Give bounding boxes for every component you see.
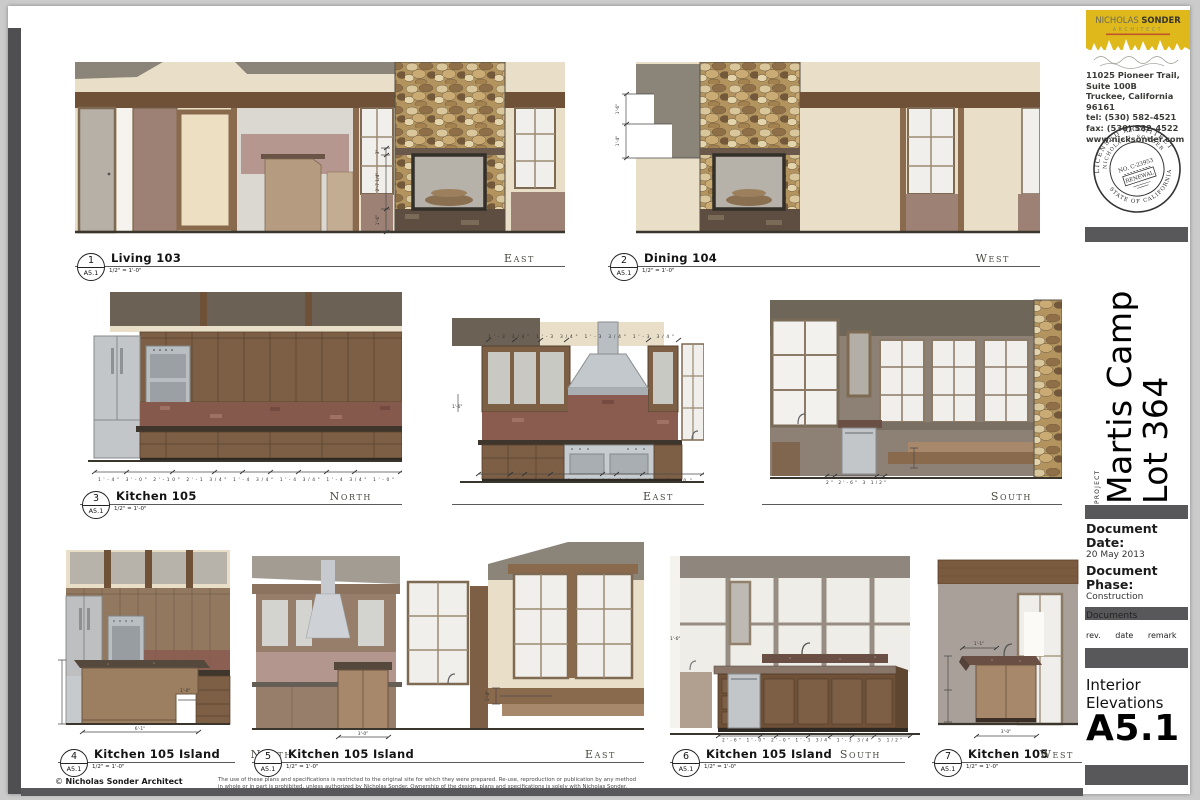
copyright-symbol: © (55, 777, 63, 786)
project-name-line2: Lot 364 (1138, 246, 1174, 504)
drawing-number-bubble: 5 A5.1 (254, 749, 282, 777)
cabinet (772, 442, 800, 476)
svg-text:1'-6": 1'-6" (375, 215, 381, 225)
sheet-number: A5.1 (1086, 708, 1180, 749)
drawing-title: Dining 104 (644, 251, 717, 265)
drawing-dining-104-west: 1'-6" 1'-4" (608, 62, 1040, 244)
drawing-kitchen-105-north: 1'-4" 3'-0" 2'-10" 2'-1 3/4" 1'-4 3/4" 1… (80, 288, 402, 484)
window (682, 344, 704, 440)
tile-backsplash (140, 402, 402, 426)
fireplace (714, 155, 784, 209)
compass-direction: West (1040, 748, 1074, 761)
drawing-scale: 1/2" = 1'-0" (704, 764, 737, 770)
svg-text:1'-0": 1'-0" (180, 688, 190, 694)
svg-text:3'-0": 3'-0" (358, 731, 368, 737)
sheet-title: Interior Elevations (1086, 676, 1164, 712)
revision-header-row: rev. date remark (1086, 631, 1190, 640)
drawing-number-bubble: 2 A5.1 (610, 253, 638, 281)
svg-text:2'-7 1/4": 2'-7 1/4" (375, 173, 381, 192)
drawing-title: Kitchen 105 Island (94, 747, 220, 761)
countertop (136, 426, 402, 432)
logo-name-bold: SONDER (1141, 15, 1181, 25)
label-kitchen-105-island-north: 4 A5.1 Kitchen 105 Island North 1/2" = 1… (58, 744, 235, 778)
fireplace (413, 155, 485, 209)
bench-steps (888, 442, 1034, 464)
drawing-kitchen-105-island-south: 2'-6" 1'-0" 2'-0" 1'-3 3/4" 1'-3 3/4" 5 … (670, 542, 920, 742)
window-header (508, 564, 638, 574)
label-underline (75, 266, 565, 267)
project-name-block: PROJECT Martis Camp Lot 364 (1094, 246, 1190, 504)
document-date-value: 20 May 2013 (1086, 550, 1190, 561)
window-sink (408, 582, 468, 684)
logo-tagline-line (1106, 34, 1170, 36)
svg-text:6'-1": 6'-1" (135, 726, 145, 732)
wood-cabinet-column (470, 586, 488, 729)
drawing-kitchen-105-south: 2" 2'-6" 3 1/2" (762, 292, 1062, 484)
label-kitchen-105-east: East (452, 486, 704, 520)
soffit (110, 292, 402, 326)
compass-direction: East (643, 490, 674, 503)
drawing-number-bubble: 3 A5.1 (82, 491, 110, 519)
base-cabinets (140, 432, 402, 461)
drawing-title: Kitchen 105 (116, 489, 197, 503)
sheet-left-edge-strip (8, 28, 21, 794)
label-kitchen-105: 3 A5.1 Kitchen 105 North 1/2" = 1'-0" (80, 486, 402, 520)
dishwasher (842, 428, 876, 474)
tile-fleck (512, 418, 524, 422)
window (904, 108, 958, 232)
side-dimension: 1'-6" (452, 394, 462, 412)
logo-subtitle: ARCHITECT (1113, 27, 1163, 33)
address-line: 11025 Pioneer Trail, Suite 100B (1086, 70, 1192, 91)
wall-sliver (117, 108, 132, 232)
label-dining-104: 2 A5.1 Dining 104 West 1/2" = 1'-0" (608, 248, 1040, 282)
rev-header: rev. (1086, 631, 1101, 640)
kitchen-view-beyond (235, 108, 355, 232)
architect-stamp: LICENSED ARCHITECT NICHOLAS J. SONDER ST… (1090, 122, 1184, 216)
window-left-of-chimney (361, 108, 393, 232)
drawing-kitchen-105-island-east: 3'-0" 1'-4" (252, 538, 644, 742)
compass-direction: South (840, 748, 881, 761)
project-name-line1: Martis Camp (1102, 246, 1138, 504)
dishwasher (728, 674, 760, 728)
wall-strip (110, 326, 402, 332)
countertop (478, 440, 682, 445)
drawing-title: Kitchen 105 (968, 747, 1049, 761)
drawing-title: Kitchen 105 Island (706, 747, 832, 761)
document-info: Document Date: 20 May 2013 Document Phas… (1086, 522, 1190, 640)
framed-panel (179, 112, 231, 228)
svg-text:2'-6" 1'-0" 2'-0" 1'-3 3/4": 2'-6" 1'-0" 2'-0" 1'-3 3/4" 1'-3 3/4" 5 … (722, 738, 902, 743)
living-door (79, 108, 115, 232)
architectural-sheet-canvas: 3" 2'-7 1/4" 1'-6" (0, 0, 1200, 800)
drawing-number-bubble: 7 A5.1 (934, 749, 962, 777)
label-kitchen-105-island-south: 6 A5.1 Kitchen 105 Island South 1/2" = 1… (670, 744, 905, 778)
svg-text:1'-6": 1'-6" (615, 104, 621, 114)
label-kitchen-105-island-east: 5 A5.1 Kitchen 105 Island East 1/2" = 1'… (252, 744, 644, 778)
titleblock-divider-bar (1085, 648, 1188, 668)
label-underline (608, 266, 1040, 267)
label-living-103: 1 A5.1 Living 103 East 1/2" = 1'-0" (75, 248, 565, 282)
drawing-kitchen-105-east: 1'-3 3/4" 1'-3 3/4" 1'-3 3/4" 1'-3 3/4" … (452, 288, 704, 484)
wood-post (353, 108, 359, 232)
document-phase-value-line1: Construction (1086, 592, 1190, 603)
sloped-ceiling-steps (636, 64, 700, 158)
titleblock-divider-bar (1085, 227, 1188, 242)
tile-fleck (602, 400, 614, 404)
wood-post (900, 108, 906, 232)
drawing-title: Kitchen 105 Island (288, 747, 414, 761)
drawing-scale: 1/2" = 1'-0" (966, 764, 999, 770)
drawing-scale: 1/2" = 1'-0" (92, 764, 125, 770)
dimension-string: 1'-4" 3'-0" 2'-10" 2'-1 3/4" 1'-4 3/4" 1… (92, 470, 402, 483)
sheet-title-line1: Interior (1086, 676, 1164, 694)
svg-text:1'-4": 1'-4" (615, 136, 621, 146)
compass-direction: South (991, 490, 1032, 503)
clerestory (66, 550, 230, 588)
firm-logo: NICHOLAS SONDER ARCHITECT (1086, 10, 1190, 72)
tile-fleck (657, 420, 669, 424)
wood-post (200, 292, 207, 326)
drawing-title: Living 103 (111, 251, 181, 265)
drawing-number-bubble: 6 A5.1 (672, 749, 700, 777)
drawing-kitchen-105-west: 1'-1" 3'-0" (932, 540, 1084, 745)
titleblock-divider-bar (1085, 765, 1188, 785)
upper-glass-cabinet-right (648, 346, 678, 412)
drawing-number-bubble: 1 A5.1 (77, 253, 105, 281)
bench-steps (488, 688, 644, 716)
titleblock-divider-bar (1085, 505, 1188, 519)
svg-text:2" 2'-6" 3 1/2": 2" 2'-6" 3 1/2" (826, 480, 886, 484)
svg-text:NICHOLAS SONDER: NICHOLAS SONDER (1095, 15, 1181, 25)
compass-direction: East (504, 252, 535, 265)
svg-text:1'-6": 1'-6" (452, 404, 462, 410)
drawing-living-103-east: 3" 2'-7 1/4" 1'-6" (75, 62, 565, 244)
remark-header: remark (1148, 631, 1177, 640)
label-kitchen-105-south: South (762, 486, 1062, 520)
drawing-scale: 1/2" = 1'-0" (642, 268, 675, 274)
svg-text:3'-0": 3'-0" (1001, 729, 1011, 735)
label-underline (252, 762, 644, 763)
svg-text:1'-4" 3'-0" 2'-10" 2'-1 3/4: 1'-4" 3'-0" 2'-10" 2'-1 3/4" 1'-4 3/4" 1… (98, 477, 394, 483)
window-sliver (1018, 108, 1040, 232)
drawing-kitchen-105-island-north: 6'-1" 1'-0" (58, 542, 238, 740)
counter (838, 420, 882, 428)
counter (194, 670, 230, 676)
window-left (772, 320, 838, 426)
date-header: date (1115, 631, 1133, 640)
logo-name-thin: NICHOLAS (1095, 15, 1138, 25)
drawing-scale: 1/2" = 1'-0" (109, 268, 142, 274)
island (334, 662, 392, 729)
drawing-number-bubble: 4 A5.1 (60, 749, 88, 777)
svg-text:1'-6": 1'-6" (670, 636, 680, 642)
document-phase-label: Document Phase: (1086, 564, 1190, 592)
address-line: Truckee, California 96161 (1086, 91, 1192, 112)
window-wall (874, 340, 1034, 430)
wood-post (305, 292, 312, 326)
window-pair (514, 574, 632, 678)
compass-direction: East (585, 748, 616, 761)
document-phase-value-line2: Documents (1086, 611, 1137, 621)
framed-panel (848, 332, 870, 396)
refrigerator (94, 336, 140, 458)
wood-panel (133, 108, 177, 232)
compass-direction: North (330, 490, 372, 503)
label-underline (670, 762, 905, 763)
compass-direction: West (976, 252, 1010, 265)
wood-post (231, 108, 237, 232)
document-date-label: Document Date: (1086, 522, 1190, 550)
copyright-name: Nicholas Sonder Architect (66, 777, 183, 786)
label-underline (452, 504, 704, 505)
label-underline (80, 504, 402, 505)
label-underline (762, 504, 1062, 505)
wood-post (958, 108, 964, 232)
dining-left-wall (636, 158, 700, 232)
base-cabinet (196, 676, 230, 724)
svg-text:1'-1": 1'-1" (974, 641, 984, 647)
copyright-note: © Nicholas Sonder Architect The use of t… (55, 777, 183, 786)
drawing-scale: 1/2" = 1'-0" (286, 764, 319, 770)
svg-text:1'-4": 1'-4" (485, 691, 491, 701)
wood-beam (800, 92, 1040, 108)
drawing-scale: 1/2" = 1'-0" (114, 506, 147, 512)
label-kitchen-105-west: 7 A5.1 Kitchen 105 West 1/2" = 1'-0" (932, 744, 1082, 778)
stone-column (1034, 300, 1062, 478)
soffit (452, 318, 540, 346)
document-phase-value-line2-wrap: Documents (1086, 603, 1190, 621)
upper-glass-cabinets-left (482, 346, 570, 412)
legal-text: The use of these plans and specification… (218, 777, 738, 790)
wood-beam (938, 560, 1078, 584)
svg-text:3": 3" (375, 150, 381, 155)
